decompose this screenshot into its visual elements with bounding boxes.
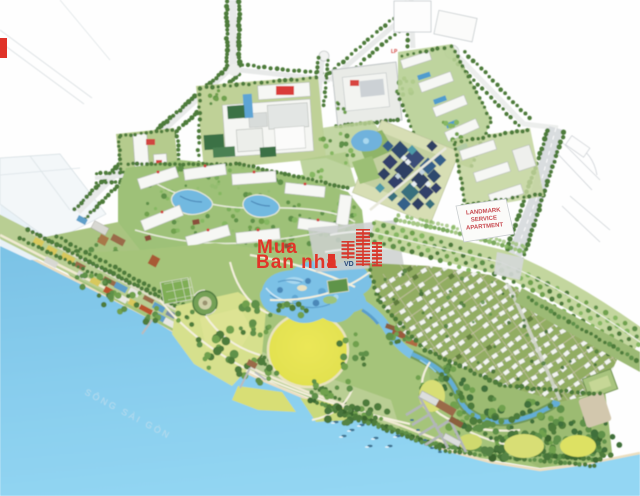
svg-text:Ban nha: Ban nha (256, 252, 338, 273)
svg-text:LP: LP (391, 49, 398, 55)
svg-text:VD: VD (344, 261, 354, 268)
